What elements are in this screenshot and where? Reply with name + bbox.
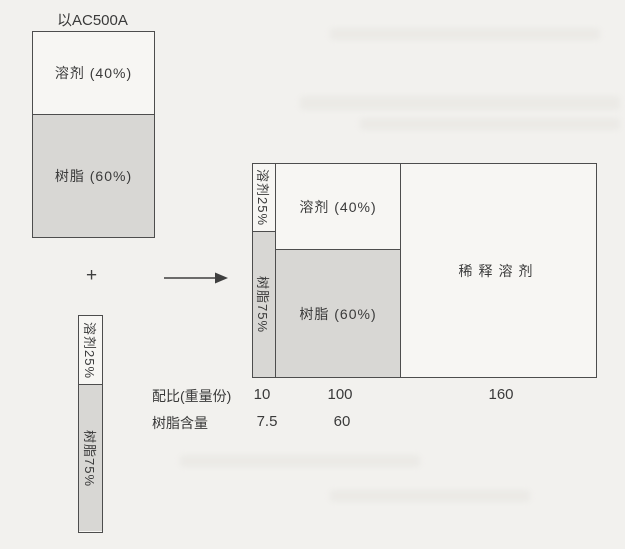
ratio-value-diluent: 160 [488,386,513,403]
resin-content-row-label: 树脂含量 [152,413,208,433]
result-agent-solvent-section: 溶剂25% [253,164,275,231]
agent-solvent-section: 溶剂25% [79,316,102,384]
result-agent-resin-section: 树脂75% [253,231,275,377]
agent-resin-section: 树脂75% [79,384,102,531]
base-resin-section: 树脂 (60%) [33,114,154,237]
result-mix-box: 溶剂25% 树脂75% 溶剂 (40%) 树脂 (60%) 稀释溶剂 [252,163,597,378]
base-resin-label: 树脂 (60%) [55,166,132,186]
ratio-value-base: 100 [327,386,352,403]
plus-sign: + [86,265,97,287]
result-agent-column: 溶剂25% 树脂75% [253,164,276,377]
agent-resin-label: 树脂75% [81,429,100,486]
agent-solvent-label: 溶剂25% [81,321,100,378]
ratio-row-label: 配比(重量份) [152,386,231,406]
right-arrow-icon [162,270,230,286]
result-base-solvent-section: 溶剂 (40%) [276,164,400,249]
result-diluent-section: 稀释溶剂 [401,164,596,377]
result-agent-solvent-label: 溶剂25% [255,169,274,226]
curing-agent-bar: 溶剂25% 树脂75% [78,315,103,533]
diagram-title: 以AC500A [57,9,128,30]
base-solvent-section: 溶剂 (40%) [33,32,154,114]
base-solvent-label: 溶剂 (40%) [55,63,132,83]
resin-content-base: 60 [334,413,351,430]
resin-content-agent: 7.5 [257,413,278,430]
ratio-value-agent: 10 [254,386,271,403]
result-base-column: 溶剂 (40%) 树脂 (60%) [276,164,401,377]
result-base-resin-section: 树脂 (60%) [276,249,400,377]
result-base-solvent-label: 溶剂 (40%) [299,197,376,217]
result-base-resin-label: 树脂 (60%) [299,304,376,324]
diluent-label: 稀释溶剂 [459,261,539,281]
result-agent-resin-label: 树脂75% [255,276,274,333]
base-mix-box: 溶剂 (40%) 树脂 (60%) [32,31,155,238]
